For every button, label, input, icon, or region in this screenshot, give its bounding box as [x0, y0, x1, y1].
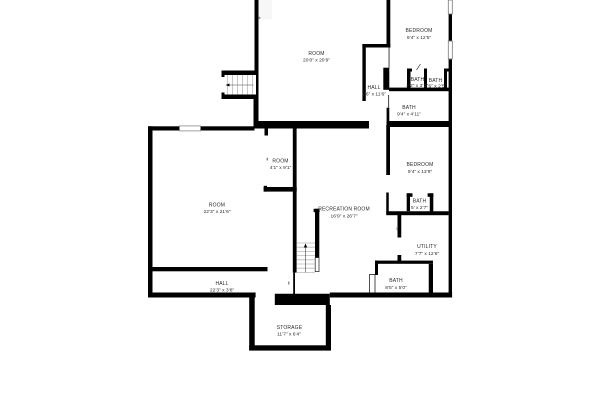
- svg-text:BATH: BATH: [402, 105, 416, 111]
- svg-text:16’9” x 26’7”: 16’9” x 26’7”: [331, 214, 358, 220]
- svg-text:BEDROOM: BEDROOM: [407, 162, 434, 168]
- svg-text:9’4” x 12’5”: 9’4” x 12’5”: [407, 35, 432, 41]
- svg-text:RECREATION ROOM: RECREATION ROOM: [318, 206, 370, 212]
- svg-text:9’4” x 13’9”: 9’4” x 13’9”: [408, 169, 433, 175]
- svg-text:BATH: BATH: [389, 278, 403, 284]
- svg-text:22’3” x 3’8”: 22’3” x 3’8”: [210, 288, 235, 294]
- svg-text:BEDROOM: BEDROOM: [406, 28, 433, 34]
- svg-text:5’ x 2’7”: 5’ x 2’7”: [411, 205, 428, 211]
- svg-text:22’3” x 21’6”: 22’3” x 21’6”: [204, 209, 231, 215]
- svg-text:STORAGE: STORAGE: [277, 325, 303, 331]
- svg-text:ROOM: ROOM: [308, 51, 324, 57]
- svg-text:BATH: BATH: [429, 78, 443, 84]
- svg-text:BATH: BATH: [411, 77, 425, 83]
- svg-text:7’7” x 12’6”: 7’7” x 12’6”: [415, 251, 440, 257]
- svg-text:20’0” x 20’9”: 20’0” x 20’9”: [303, 58, 330, 64]
- svg-text:HALL: HALL: [215, 281, 228, 287]
- svg-text:BATH: BATH: [413, 199, 427, 205]
- svg-text:HALL: HALL: [367, 85, 380, 91]
- svg-text:2’6” x 11’6”: 2’6” x 11’6”: [362, 92, 386, 98]
- svg-text:8’5” x 5’0”: 8’5” x 5’0”: [385, 285, 407, 291]
- svg-text:ROOM: ROOM: [272, 159, 288, 165]
- svg-text:4’1” x 9’1”: 4’1” x 9’1”: [270, 165, 292, 171]
- svg-text:ROOM: ROOM: [209, 203, 225, 209]
- svg-text:11’7” x 6’4”: 11’7” x 6’4”: [277, 332, 301, 338]
- svg-text:7’6” x 2’5”: 7’6” x 2’5”: [425, 84, 447, 90]
- svg-text:9’4” x 4’11”: 9’4” x 4’11”: [397, 112, 421, 118]
- svg-text:UTILITY: UTILITY: [417, 244, 437, 250]
